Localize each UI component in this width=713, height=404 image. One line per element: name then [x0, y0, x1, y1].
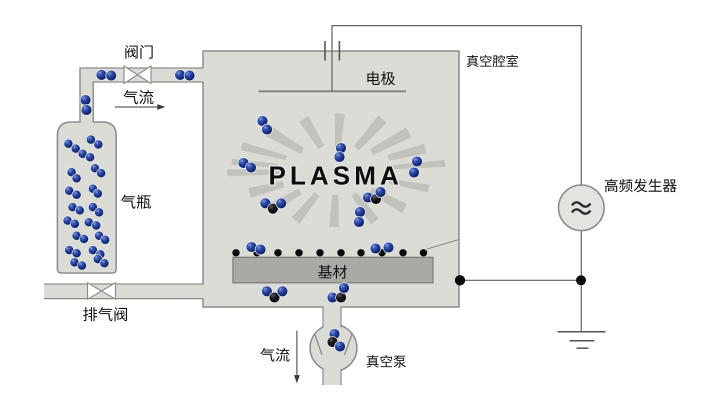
svg-text:PLASMA: PLASMA: [269, 161, 403, 191]
